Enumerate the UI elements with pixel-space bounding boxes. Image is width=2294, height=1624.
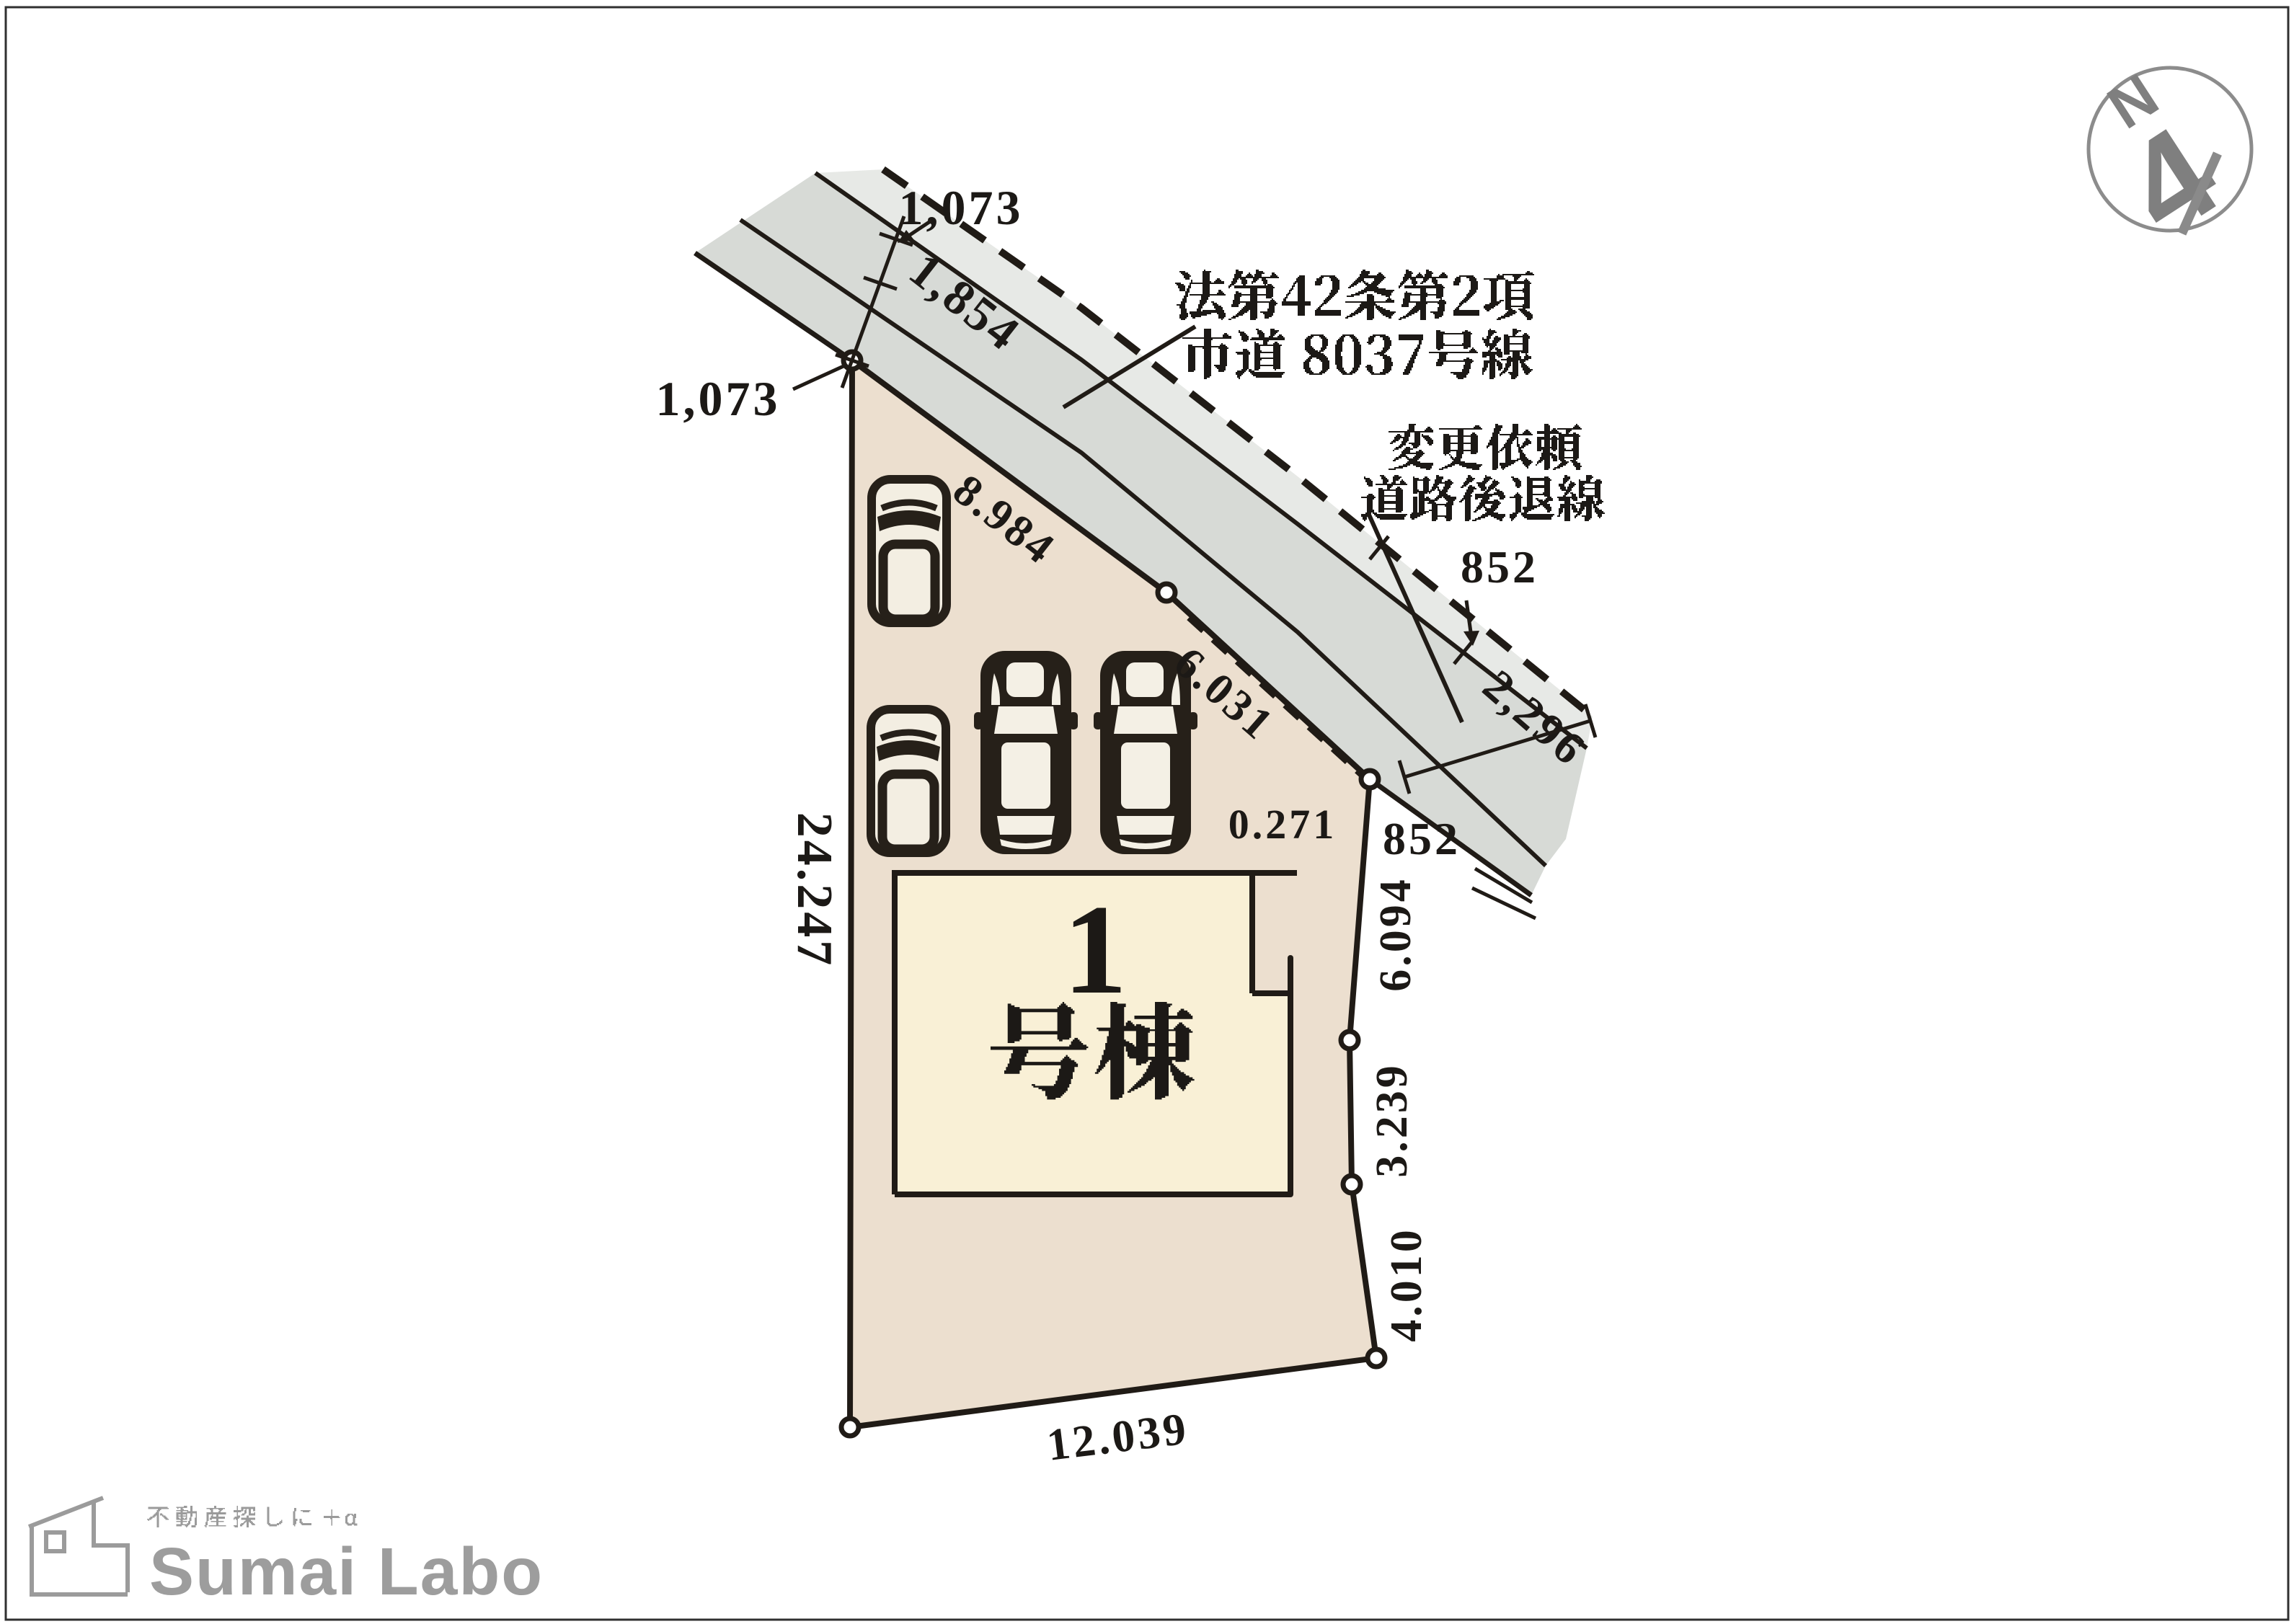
svg-text:1,073: 1,073 [899, 180, 1024, 235]
svg-text:0.271: 0.271 [1228, 801, 1337, 848]
svg-text:6.094: 6.094 [1371, 877, 1420, 992]
svg-text:4.010: 4.010 [1382, 1227, 1431, 1342]
svg-text:24.247: 24.247 [787, 812, 842, 969]
svg-text:852: 852 [1461, 541, 1538, 593]
svg-text:Sumai Labo: Sumai Labo [149, 1534, 544, 1609]
svg-text:3.239: 3.239 [1368, 1062, 1417, 1178]
svg-text:1,073: 1,073 [656, 371, 781, 426]
svg-text:1: 1 [1063, 878, 1128, 1021]
svg-text:852: 852 [1383, 813, 1461, 864]
